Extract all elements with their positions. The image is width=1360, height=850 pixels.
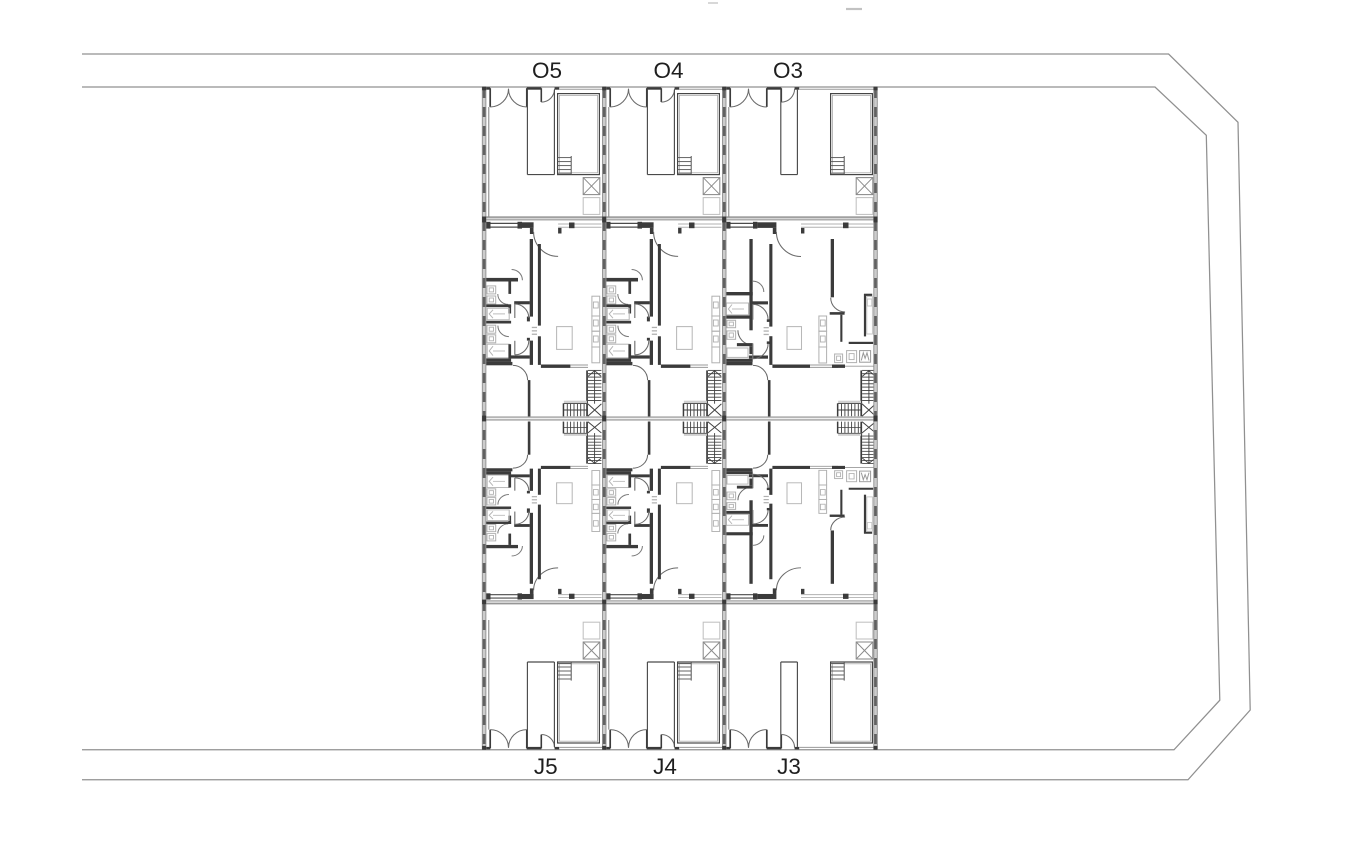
svg-text:J3: J3 — [777, 754, 801, 779]
svg-text:J5: J5 — [534, 754, 558, 779]
svg-text:O4: O4 — [653, 58, 683, 83]
svg-text:O5: O5 — [532, 58, 562, 83]
svg-text:O3: O3 — [773, 58, 803, 83]
svg-text:J4: J4 — [653, 754, 677, 779]
